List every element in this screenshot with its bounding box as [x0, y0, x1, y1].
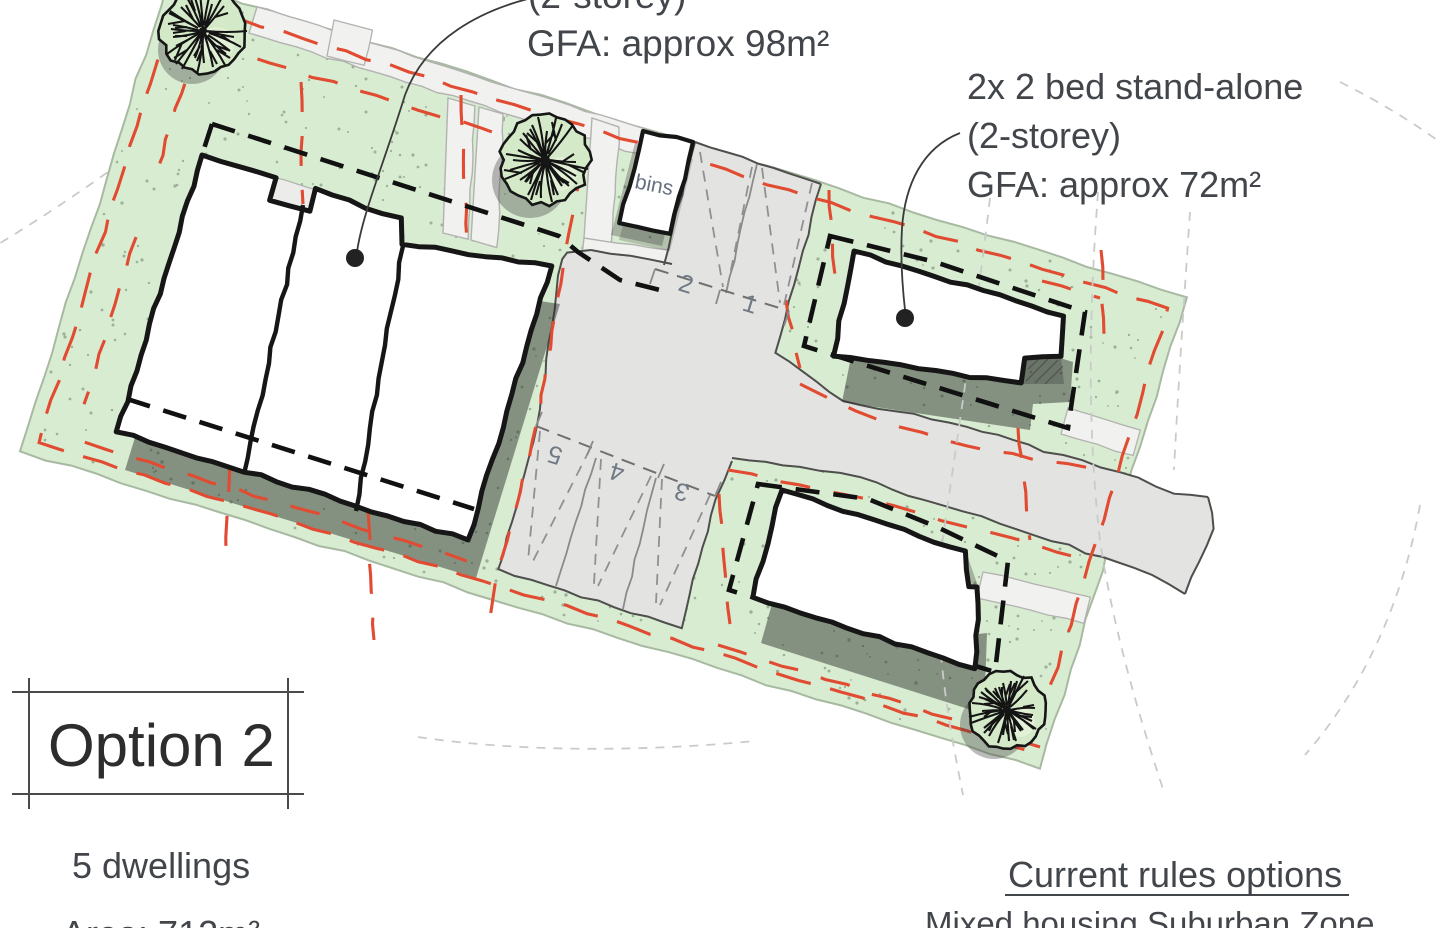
svg-text:5 dwellings: 5 dwellings [72, 845, 250, 886]
svg-text:(2-storey): (2-storey) [528, 0, 686, 16]
svg-text:2x 2 bed stand-alone: 2x 2 bed stand-alone [967, 66, 1303, 107]
svg-text:Area: 712m²: Area: 712m² [62, 913, 260, 928]
svg-text:Option 2: Option 2 [48, 712, 275, 779]
svg-text:Current rules options: Current rules options [1008, 854, 1342, 895]
svg-text:GFA: approx 72m²: GFA: approx 72m² [967, 164, 1261, 205]
svg-text:(2-storey): (2-storey) [967, 115, 1121, 156]
svg-text:GFA: approx 98m²: GFA: approx 98m² [527, 23, 829, 64]
svg-text:Mixed housing Suburban Zone: Mixed housing Suburban Zone [925, 905, 1374, 928]
